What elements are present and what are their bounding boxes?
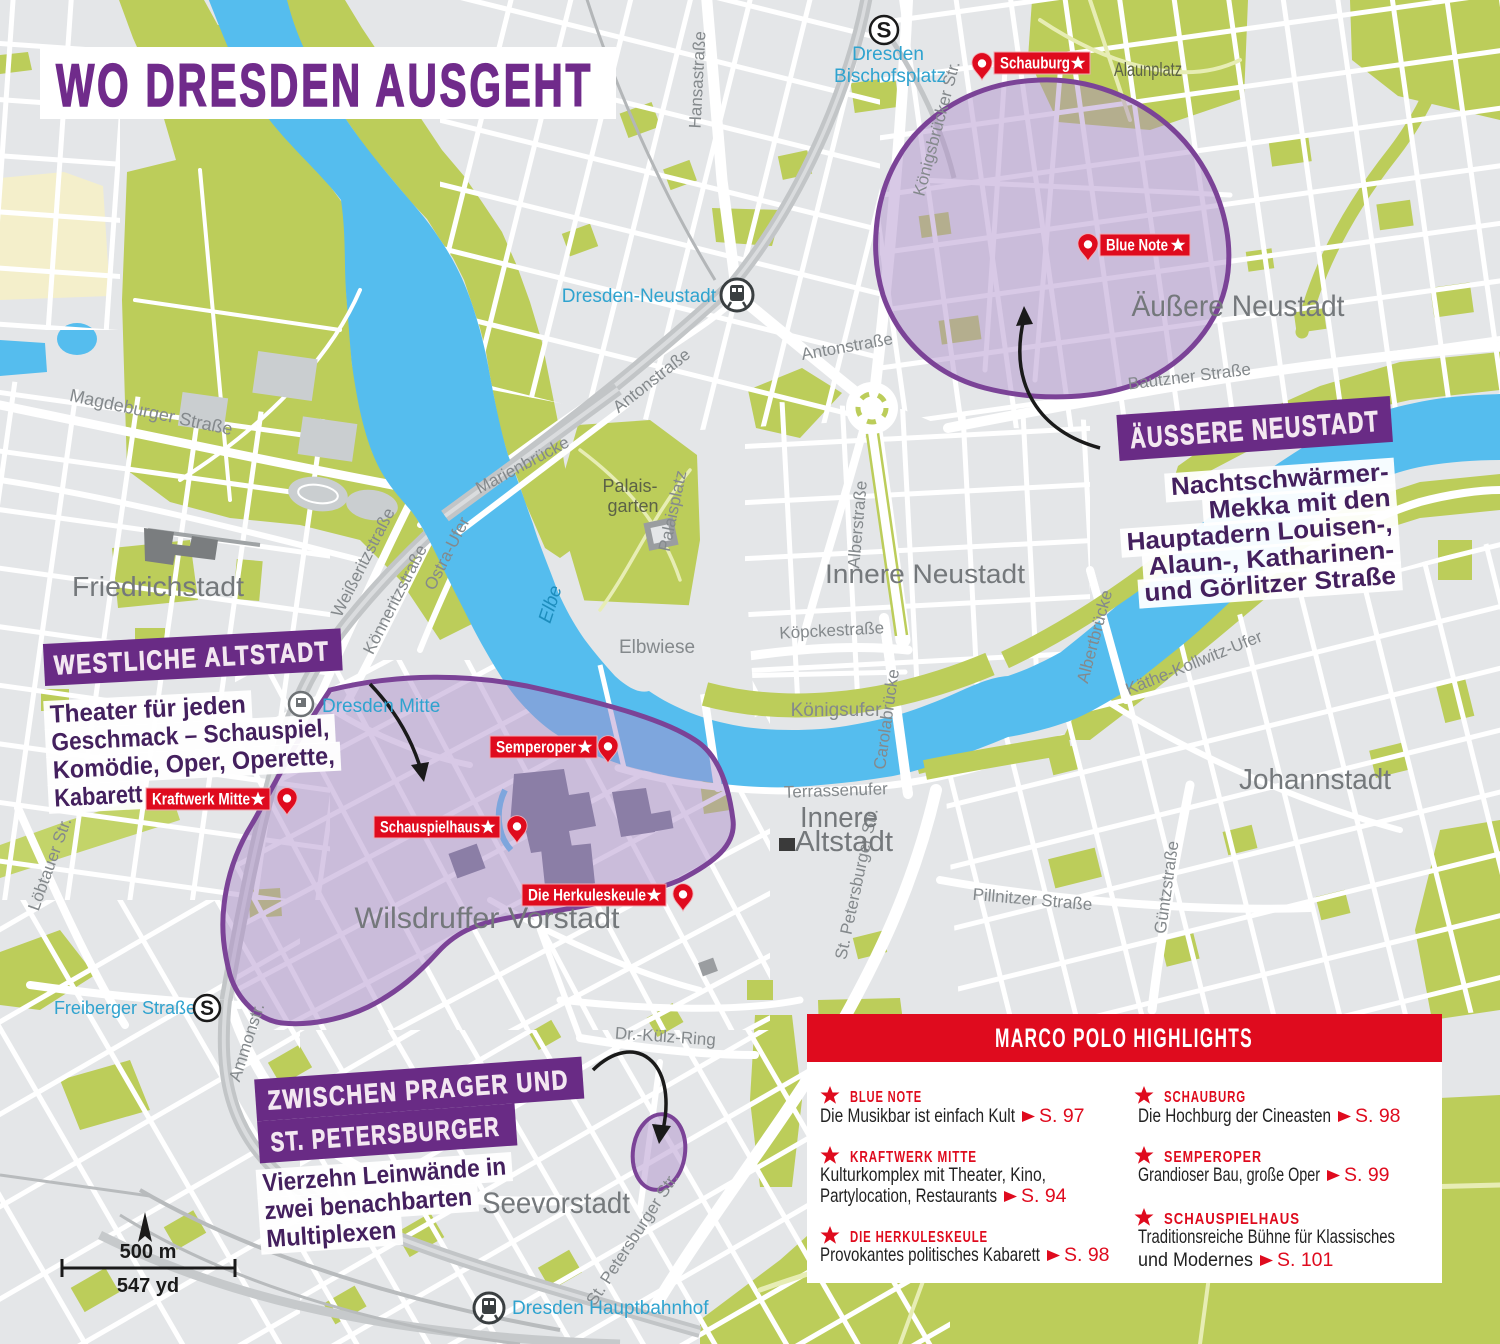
- svg-text:und Modernes: und Modernes: [1138, 1249, 1253, 1271]
- svg-text:Dresden Hauptbahnhof: Dresden Hauptbahnhof: [512, 1298, 709, 1319]
- svg-text:S: S: [200, 997, 214, 1020]
- svg-text:WO DRESDEN AUSGEHT: WO DRESDEN AUSGEHT: [56, 52, 593, 119]
- svg-text:Johannstadt: Johannstadt: [1239, 764, 1391, 796]
- svg-text:S: S: [877, 18, 892, 43]
- svg-text:BLUE NOTE: BLUE NOTE: [850, 1089, 922, 1106]
- svg-text:Dresden-Neustadt: Dresden-Neustadt: [562, 286, 717, 307]
- svg-text:MARCO POLO HIGHLIGHTS: MARCO POLO HIGHLIGHTS: [995, 1023, 1253, 1053]
- svg-text:Seevorstadt: Seevorstadt: [482, 1187, 631, 1220]
- svg-text:Traditionsreiche Bühne für Kla: Traditionsreiche Bühne für Klassisches: [1138, 1226, 1395, 1248]
- svg-text:S. 94: S. 94: [1021, 1185, 1067, 1207]
- svg-text:Alaunplatz: Alaunplatz: [1114, 60, 1182, 81]
- svg-text:garten: garten: [607, 496, 658, 516]
- svg-text:S. 97: S. 97: [1039, 1105, 1085, 1127]
- svg-text:Blue Note: Blue Note: [1106, 236, 1168, 255]
- svg-text:Schauspielhaus: Schauspielhaus: [380, 818, 480, 837]
- svg-text:S. 99: S. 99: [1344, 1164, 1390, 1186]
- svg-text:Freiberger Straße: Freiberger Straße: [54, 998, 196, 1018]
- svg-text:547 yd: 547 yd: [117, 1275, 179, 1297]
- svg-text:Kulturkomplex mit Theater, Kin: Kulturkomplex mit Theater, Kino,: [820, 1164, 1046, 1186]
- svg-text:Terrassenufer: Terrassenufer: [784, 779, 889, 802]
- svg-text:S. 98: S. 98: [1355, 1105, 1401, 1127]
- svg-text:Semperoper: Semperoper: [496, 738, 576, 757]
- svg-text:500 m: 500 m: [120, 1241, 177, 1263]
- svg-text:Die Herkuleskeule: Die Herkuleskeule: [528, 886, 646, 905]
- svg-text:Die Hochburg der Cineasten: Die Hochburg der Cineasten: [1138, 1105, 1331, 1127]
- svg-text:S. 101: S. 101: [1277, 1249, 1333, 1271]
- svg-text:Altstadt: Altstadt: [795, 826, 893, 858]
- svg-text:Palais-: Palais-: [602, 476, 657, 496]
- svg-text:Elbwiese: Elbwiese: [619, 637, 695, 658]
- svg-text:Äußere Neustadt: Äußere Neustadt: [1132, 290, 1346, 323]
- svg-text:Die Musikbar ist einfach Kult: Die Musikbar ist einfach Kult: [820, 1105, 1015, 1127]
- svg-text:Kraftwerk Mitte: Kraftwerk Mitte: [152, 790, 250, 809]
- svg-text:Schauburg: Schauburg: [1000, 54, 1070, 73]
- svg-text:Innere Neustadt: Innere Neustadt: [825, 559, 1026, 589]
- svg-text:Provokantes politisches Kabare: Provokantes politisches Kabarett: [820, 1244, 1040, 1266]
- svg-text:Grandioser Bau, große Oper: Grandioser Bau, große Oper: [1138, 1164, 1320, 1186]
- svg-text:Königsufer: Königsufer: [791, 700, 883, 721]
- svg-text:S. 98: S. 98: [1064, 1244, 1110, 1266]
- svg-text:Dresden: Dresden: [852, 44, 924, 65]
- svg-text:Dresden Mitte: Dresden Mitte: [322, 696, 440, 717]
- svg-text:SCHAUBURG: SCHAUBURG: [1164, 1089, 1246, 1106]
- svg-text:Bischofsplatz: Bischofsplatz: [834, 66, 946, 87]
- svg-text:Wilsdruffer Vorstadt: Wilsdruffer Vorstadt: [355, 902, 621, 935]
- svg-text:Partylocation, Restaurants: Partylocation, Restaurants: [820, 1185, 997, 1207]
- svg-text:Friedrichstadt: Friedrichstadt: [72, 571, 244, 602]
- svg-text:Kabarett: Kabarett: [54, 780, 144, 813]
